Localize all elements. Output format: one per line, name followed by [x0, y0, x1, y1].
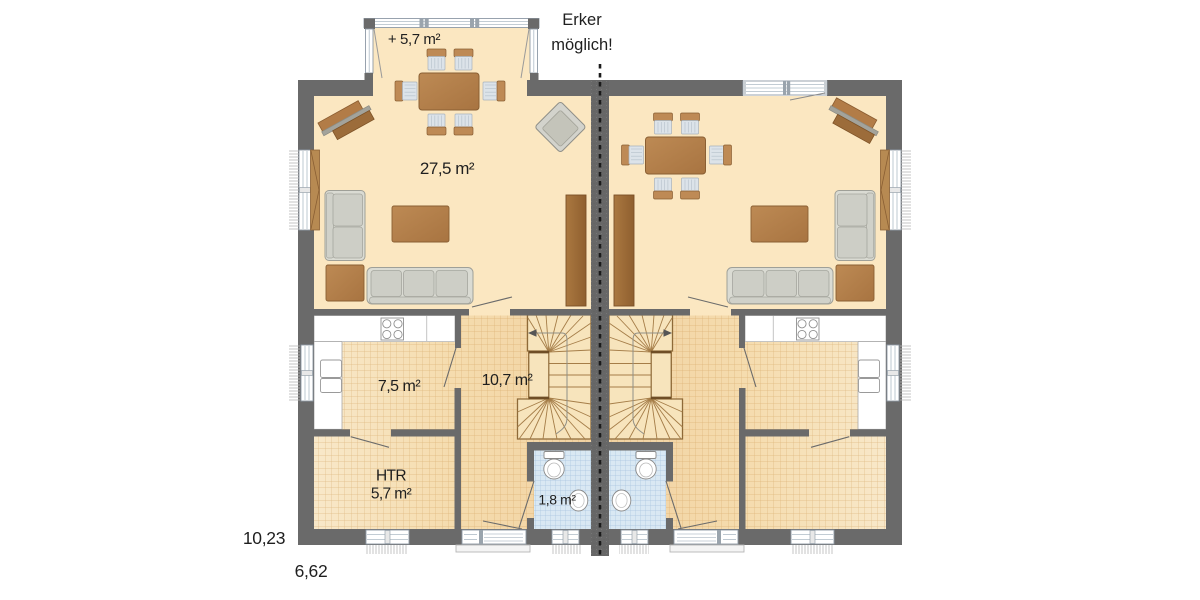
svg-text:Erker: Erker — [562, 11, 602, 29]
svg-text:möglich!: möglich! — [551, 36, 612, 54]
svg-text:6,62: 6,62 — [295, 561, 328, 581]
svg-text:HTR: HTR — [376, 468, 406, 485]
svg-text:5,7 m²: 5,7 m² — [371, 486, 412, 503]
svg-text:1,8 m²: 1,8 m² — [538, 492, 576, 508]
svg-text:10,7 m²: 10,7 m² — [482, 372, 534, 389]
svg-text:+ 5,7 m²: + 5,7 m² — [388, 31, 441, 48]
svg-text:10,23: 10,23 — [243, 528, 285, 548]
svg-text:27,5 m²: 27,5 m² — [420, 159, 475, 178]
svg-text:7,5 m²: 7,5 m² — [378, 378, 422, 395]
